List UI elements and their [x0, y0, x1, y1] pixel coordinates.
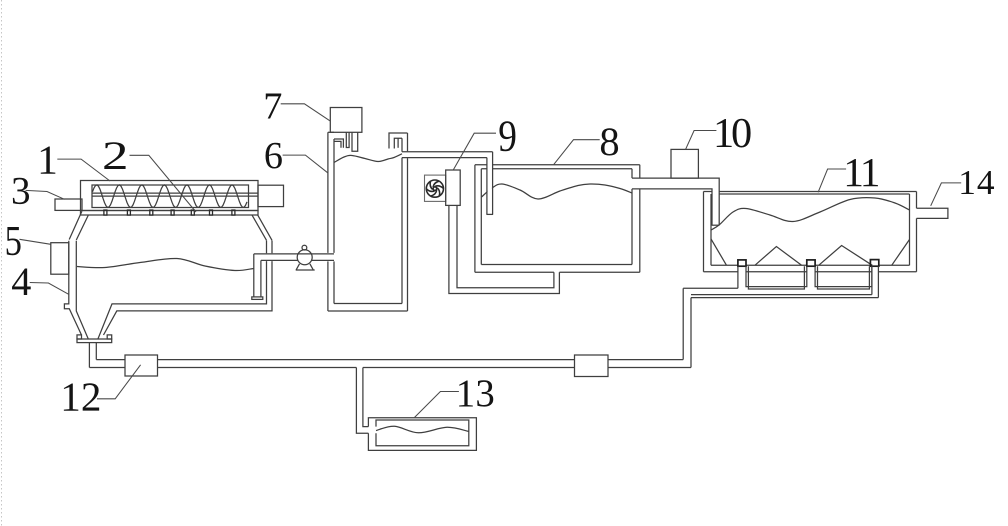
svg-text:12: 12: [60, 374, 101, 420]
svg-text:11: 11: [843, 149, 879, 195]
svg-text:7: 7: [263, 85, 282, 127]
svg-text:6: 6: [264, 135, 283, 177]
svg-text:5: 5: [5, 219, 22, 265]
svg-text:1: 1: [37, 137, 58, 183]
svg-text:9: 9: [498, 113, 517, 161]
svg-text:8: 8: [599, 119, 619, 164]
svg-text:13: 13: [456, 372, 495, 415]
svg-text:2: 2: [102, 133, 129, 178]
svg-text:14: 14: [958, 162, 995, 202]
svg-text:3: 3: [11, 169, 31, 212]
svg-text:10: 10: [713, 110, 751, 157]
svg-text:4: 4: [11, 259, 31, 304]
